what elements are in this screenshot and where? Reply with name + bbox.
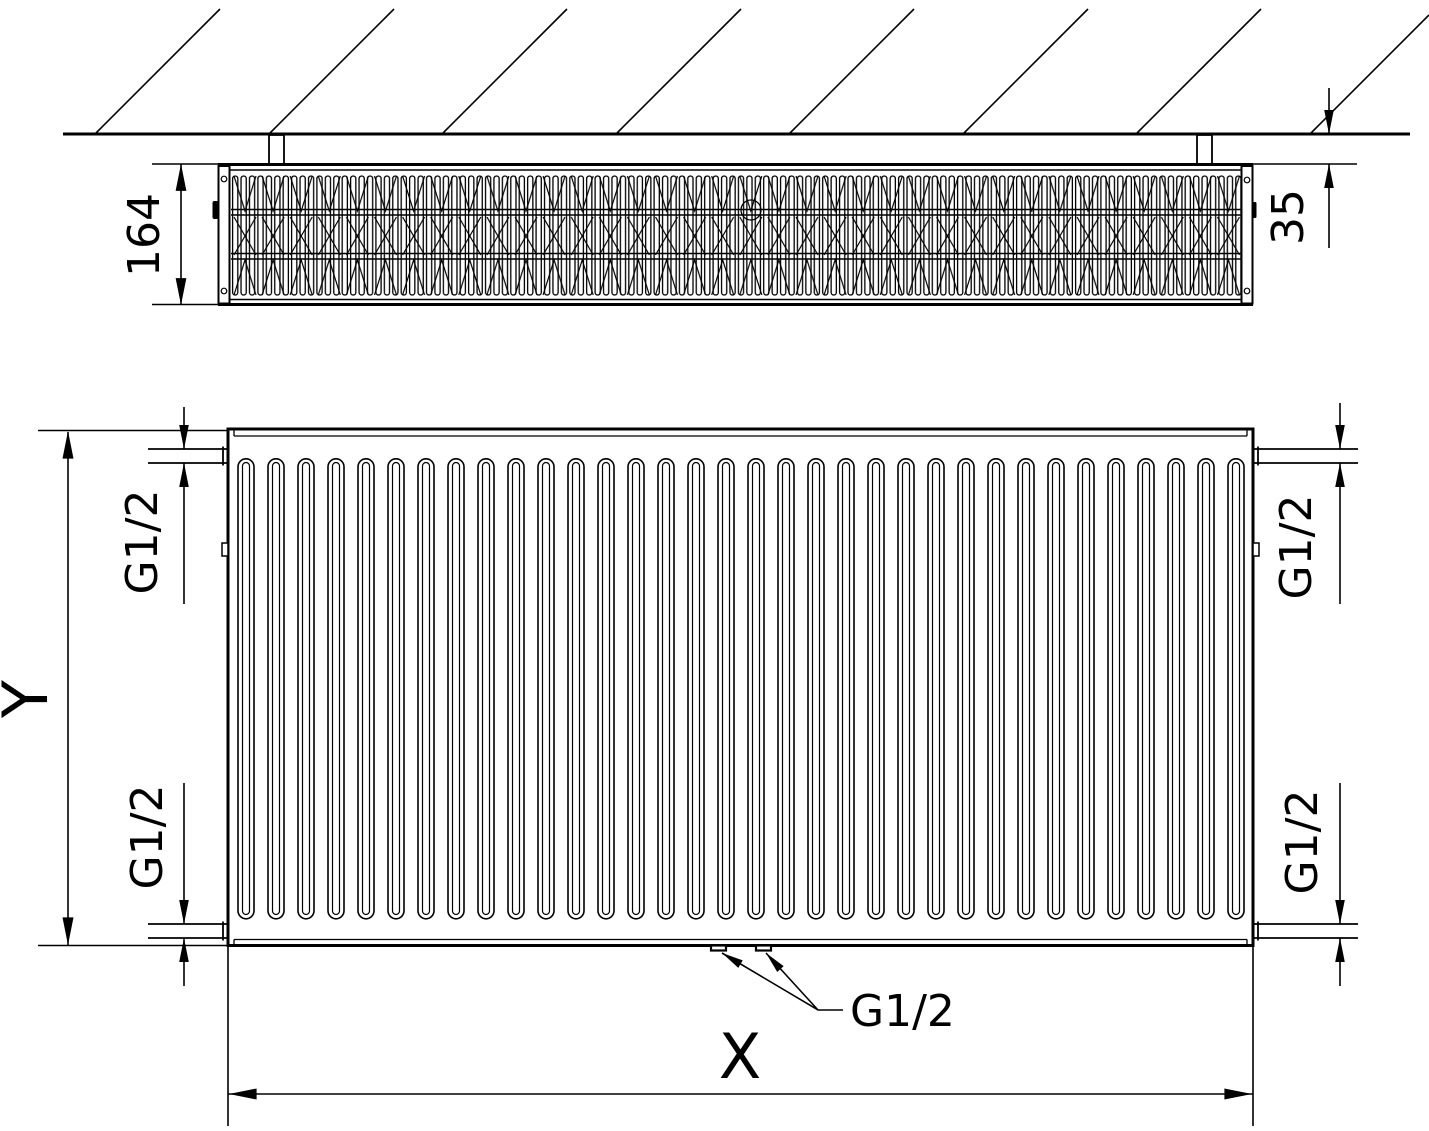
convector-fins xyxy=(231,175,1242,296)
screw-bottom-right xyxy=(1244,288,1250,294)
vent-plug-right xyxy=(1253,543,1259,556)
width-axis-label: X xyxy=(719,1020,761,1093)
end-plate-right xyxy=(1242,166,1253,304)
side-plug-right xyxy=(1252,202,1257,218)
thread-label-bottom-right: G1/2 xyxy=(1277,790,1328,895)
screw-bottom-left xyxy=(221,288,227,294)
thread-label-top-left: G1/2 xyxy=(117,490,168,595)
height-axis-label: Y xyxy=(0,680,62,719)
vent-plug-left xyxy=(222,543,228,556)
thread-label-top-right: G1/2 xyxy=(1271,495,1322,600)
wall-gap-dimension-label: 35 xyxy=(1263,189,1314,245)
wall-bracket-left xyxy=(269,135,284,165)
stub-bottom-center-1 xyxy=(711,946,726,951)
panel-grooves xyxy=(231,458,1251,920)
thread-label-bottom-left: G1/2 xyxy=(122,785,173,890)
top-view-radiator xyxy=(152,164,1357,305)
wall-bracket-right xyxy=(1197,135,1212,165)
thread-label-bottom-center: G1/2 xyxy=(850,986,955,1037)
end-plate-left xyxy=(219,166,230,304)
stub-bottom-center-2 xyxy=(756,946,771,951)
depth-dimension-label: 164 xyxy=(119,193,170,277)
front-view-radiator xyxy=(148,429,1358,951)
side-plug-left xyxy=(213,201,219,219)
screw-top-right xyxy=(1244,177,1250,183)
drawing-canvas: 164 35 Y X xyxy=(0,0,1429,1131)
radiator-dimension-drawing: 164 35 Y X xyxy=(0,0,1429,1131)
screw-top-left xyxy=(221,176,227,182)
